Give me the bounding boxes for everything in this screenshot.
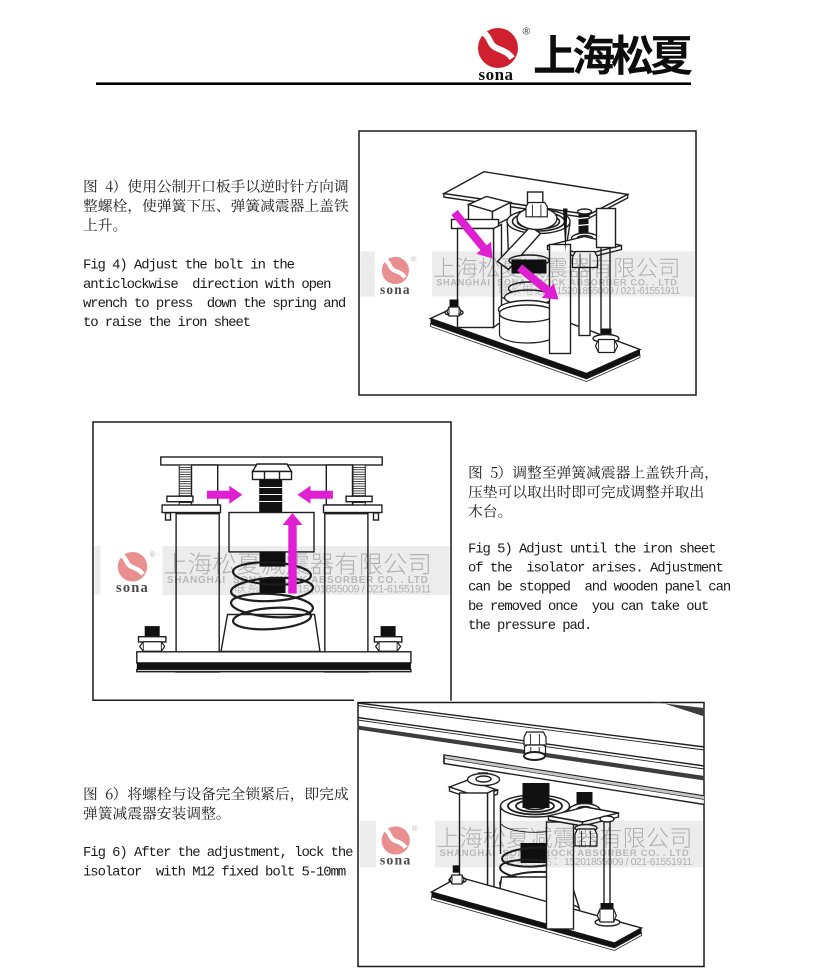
svg-text:wrench to press down the spri: wrench to press down the spring and — [83, 296, 346, 312]
svg-text:anticlockwise direction with: anticlockwise direction with open — [83, 277, 332, 293]
svg-text:can be stopped and wooden pan: can be stopped and wooden panel can — [468, 580, 731, 596]
svg-text:®: ® — [412, 824, 418, 833]
svg-text:15201855009 / 021-61551911: 15201855009 / 021-61551911 — [564, 857, 692, 868]
svg-text:sona: sona — [380, 282, 411, 297]
svg-text:®: ® — [523, 26, 531, 38]
svg-text:to raise the iron sheet: to raise the iron sheet — [83, 315, 251, 331]
svg-text:15201855009 / 021-61551911: 15201855009 / 021-61551911 — [297, 583, 431, 595]
svg-text:Fig 4) Adjust the bolt in the: Fig 4) Adjust the bolt in the — [83, 258, 295, 274]
svg-text:of the isolator arises. Adjus: of the isolator arises. Adjustment — [468, 561, 724, 577]
svg-text:Fig 6) After the adjustment, l: Fig 6) After the adjustment, lock the — [83, 845, 354, 861]
svg-text:®: ® — [411, 255, 417, 264]
svg-text:be removed once you can take: be removed once you can take out — [468, 599, 709, 615]
svg-text:Fig 5) Adjust until the iron s: Fig 5) Adjust until the iron sheet — [468, 541, 717, 557]
svg-text:®: ® — [150, 550, 156, 559]
svg-text:sona: sona — [380, 853, 412, 868]
svg-text:the pressure pad.: the pressure pad. — [468, 618, 592, 634]
svg-text:15201855009 / 021-61551911: 15201855009 / 021-61551911 — [557, 286, 681, 297]
svg-text:sona: sona — [478, 65, 513, 84]
svg-text:isolator with M12 fixed bolt: isolator with M12 fixed bolt 5-10mm — [83, 864, 346, 880]
svg-text:sona: sona — [116, 580, 149, 596]
